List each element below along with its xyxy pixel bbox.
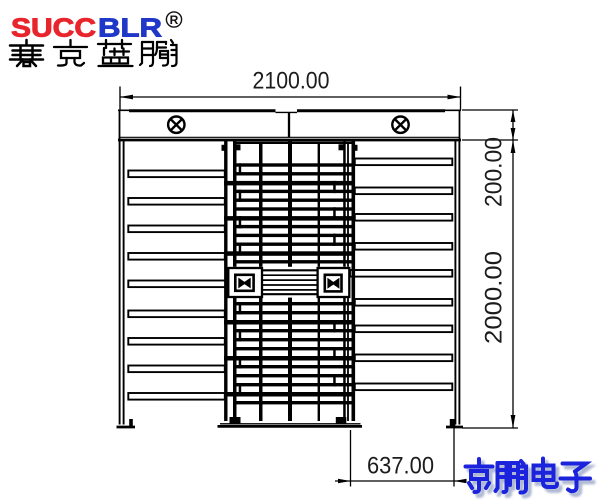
svg-text:R: R xyxy=(170,13,179,27)
svg-text:2000.00: 2000.00 xyxy=(481,251,508,344)
svg-text:BLR: BLR xyxy=(98,15,162,43)
svg-text:2100.00: 2100.00 xyxy=(253,68,330,95)
svg-text:200.00: 200.00 xyxy=(481,137,508,207)
svg-text:SUCC: SUCC xyxy=(11,15,96,43)
svg-text:637.00: 637.00 xyxy=(367,453,434,480)
